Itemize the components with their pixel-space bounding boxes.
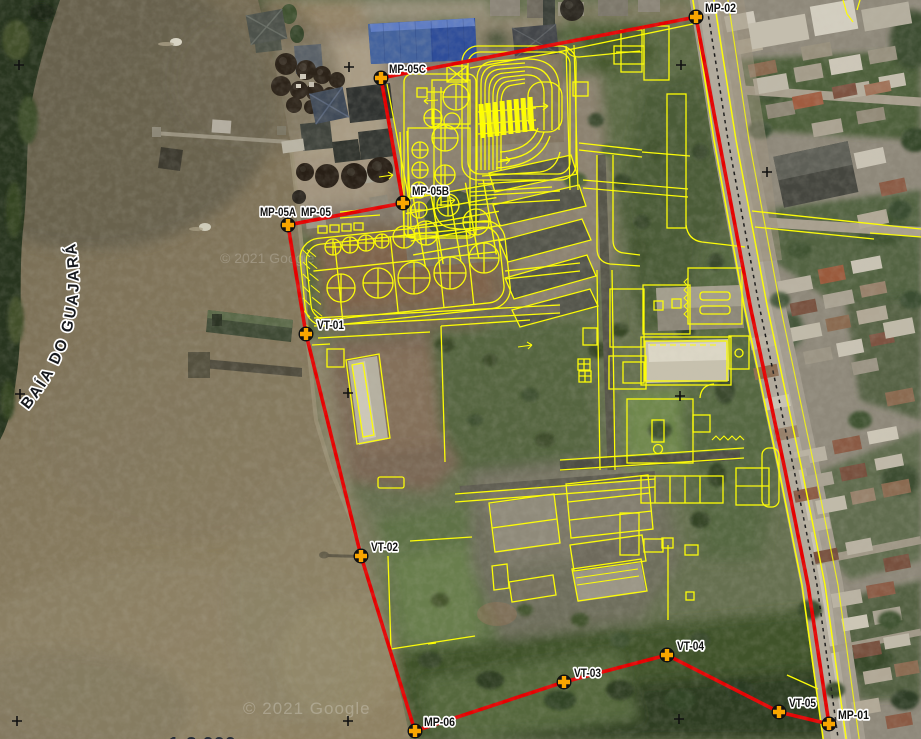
svg-text:VT-05: VT-05 (789, 696, 816, 710)
svg-text:VT-02: VT-02 (371, 540, 398, 554)
svg-text:MP-05A: MP-05A (260, 205, 296, 219)
svg-text:MP-05C: MP-05C (389, 62, 426, 76)
svg-text:MP-05: MP-05 (301, 205, 331, 219)
svg-text:MP-05B: MP-05B (412, 184, 449, 198)
svg-text:VT-03: VT-03 (574, 666, 601, 680)
svg-text:VT-04: VT-04 (677, 639, 704, 653)
svg-text:MP-02: MP-02 (705, 1, 736, 15)
svg-text:VT-01: VT-01 (317, 318, 344, 332)
svg-text:MP-06: MP-06 (424, 715, 455, 729)
svg-text:MP-01: MP-01 (838, 708, 869, 722)
